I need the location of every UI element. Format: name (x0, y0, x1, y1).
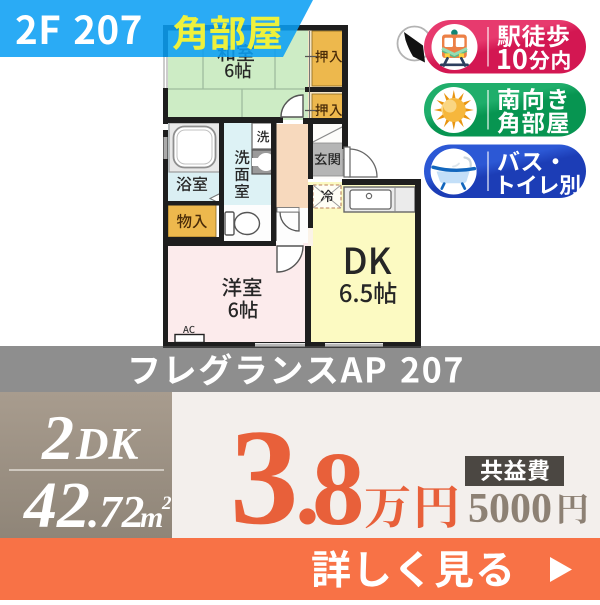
svg-text:.72: .72 (88, 487, 144, 537)
svg-text:2: 2 (161, 493, 172, 514)
svg-text:5000: 5000 (468, 486, 552, 532)
svg-text:3: 3 (230, 401, 299, 553)
svg-text:m: m (140, 501, 163, 534)
svg-text:8: 8 (312, 430, 365, 547)
svg-text:2: 2 (41, 402, 74, 473)
svg-text:42: 42 (22, 469, 90, 542)
svg-text:DK: DK (75, 419, 141, 469)
